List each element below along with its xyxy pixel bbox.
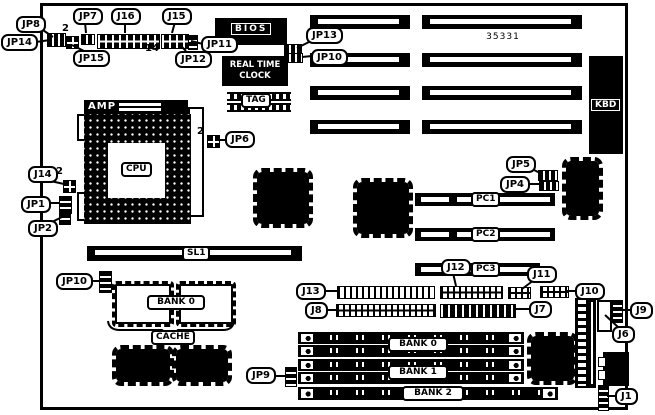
pc3-label: PC3: [471, 262, 500, 277]
isa-slot: [422, 53, 582, 67]
callout-j11: J11: [527, 266, 557, 283]
jp9-jumper: [285, 367, 297, 387]
isa-slot: [422, 120, 582, 134]
jp1-jumper: [59, 196, 72, 214]
callout-j16: J16: [111, 8, 141, 25]
j14-jumper: [63, 180, 76, 193]
callout-j10: J10: [575, 283, 605, 300]
isa-slot: [422, 86, 582, 100]
qfp-chip: [353, 178, 413, 238]
callout-jp10-bottom: JP10: [56, 273, 93, 290]
callout-jp9: JP9: [246, 367, 276, 384]
jp15-jumper: [66, 36, 79, 49]
callout-jp2: JP2: [28, 220, 58, 237]
cache-chip-soldered: [172, 345, 232, 386]
keyboard-connector: KBD: [589, 56, 623, 154]
rtc-chip: REAL TIME CLOCK: [222, 56, 288, 86]
j10-header: [540, 286, 569, 298]
amp-socket-bar: AMP: [84, 100, 188, 114]
jp11-header: [188, 35, 198, 50]
callout-j13: J13: [296, 283, 326, 300]
jp4-jumper: [539, 181, 559, 191]
j15-header: [161, 34, 189, 49]
callout-j14: J14: [28, 166, 58, 183]
cpu-label: CPU: [121, 162, 152, 177]
external-connector: [603, 352, 629, 386]
callout-jp13: JP13: [306, 27, 343, 44]
j12-header: [440, 286, 503, 299]
j13-header: [337, 286, 435, 299]
callout-jp7: JP7: [73, 8, 103, 25]
amp-lever-detail: [119, 103, 161, 111]
qfp-chip: [527, 332, 578, 385]
callout-j1: J1: [615, 388, 638, 405]
cache-bank0-label: BANK 0: [147, 295, 205, 310]
j9-header: [612, 300, 623, 323]
callout-jp10-top: JP10: [311, 49, 348, 66]
callout-j7: J7: [529, 301, 552, 318]
callout-j9: J9: [630, 302, 653, 319]
pci-slot-pc2: PC2: [415, 228, 555, 241]
connector-tab: [598, 357, 606, 367]
isa-slot: [422, 15, 582, 29]
bios-chip-label: BIOS: [231, 23, 271, 35]
keyboard-connector-label: KBD: [591, 99, 620, 111]
callout-jp14: JP14: [1, 34, 38, 51]
bank1-label: BANK 1: [388, 365, 448, 380]
tag-chip-label: TAG: [241, 93, 271, 108]
connector-tab: [598, 370, 606, 380]
callout-jp11: JP11: [201, 36, 238, 53]
rtc-label-line2: CLOCK: [222, 71, 288, 81]
j11-header: [508, 287, 531, 299]
callout-jp4: JP4: [500, 176, 530, 193]
callout-jp8: JP8: [16, 16, 46, 33]
sl1-label: SL1: [182, 246, 210, 261]
callout-j6: J6: [612, 326, 635, 343]
jp15-pin2-number: 2: [62, 23, 69, 34]
isa-slot: [310, 120, 410, 134]
j7-header: [440, 304, 516, 318]
j6-connector: [597, 300, 612, 332]
pc1-label: PC1: [471, 192, 500, 207]
cache-chip-soldered: [112, 345, 174, 386]
cpu-socket: CPU: [84, 114, 191, 224]
power-connector: [575, 298, 596, 388]
jp6-jumper: [207, 135, 220, 148]
pci-slot-pc1: PC1: [415, 193, 555, 206]
qfp-chip: [562, 157, 603, 220]
callout-jp1: JP1: [21, 196, 51, 213]
pci-slot-pc3: PC3: [415, 263, 540, 276]
pc2-label: PC2: [471, 227, 500, 242]
j8-header: [336, 304, 436, 317]
jp2-jumper: [59, 213, 71, 225]
isa-slot: [310, 86, 410, 100]
qfp-chip: [253, 168, 313, 228]
callout-j12: J12: [441, 259, 471, 276]
tag-chip: TAG: [227, 92, 291, 112]
jp7-header: [81, 34, 95, 45]
sl1-slot: SL1: [87, 246, 302, 261]
jp8-header: [47, 33, 66, 47]
rtc-label-line1: REAL TIME: [222, 60, 288, 70]
cpu-socket-cavity: CPU: [108, 143, 165, 198]
bank2-label: BANK 2: [402, 386, 464, 401]
j16-pin14-number: 14: [145, 43, 159, 54]
callout-jp15: JP15: [73, 50, 110, 67]
bank0-label: BANK 0: [388, 337, 448, 352]
callout-j8: J8: [305, 302, 328, 319]
callout-jp12: JP12: [175, 51, 212, 68]
jp5-jumper: [538, 170, 558, 181]
j1-header: [598, 385, 609, 411]
amp-label: AMP: [88, 101, 116, 112]
callout-jp6: JP6: [225, 131, 255, 148]
motherboard-diagram: 35331 KBD BIOS REAL TIME CLOCK TAG AMP C…: [0, 0, 655, 415]
jp6-pin2-number: 2: [197, 126, 204, 137]
cache-label: CACHE: [151, 330, 195, 345]
jp10-bottom-jumper: [99, 271, 112, 293]
callout-j15: J15: [162, 8, 192, 25]
callout-jp5: JP5: [506, 156, 536, 173]
board-part-number: 35331: [481, 32, 525, 42]
